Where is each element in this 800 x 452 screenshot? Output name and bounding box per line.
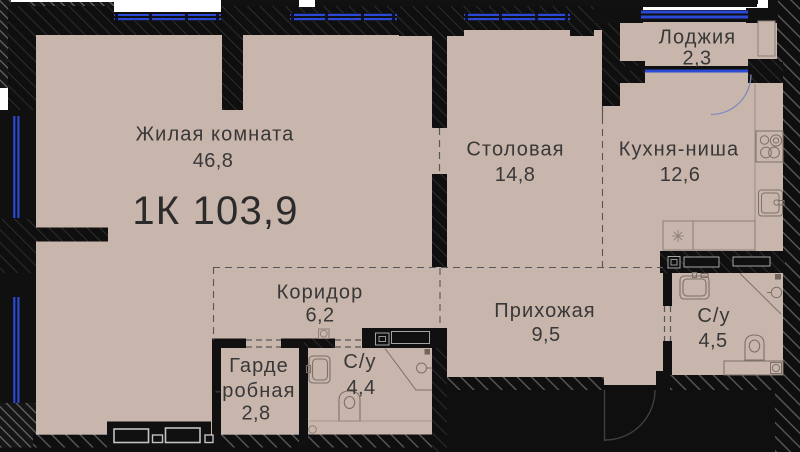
svg-text:2,3: 2,3 [682,48,711,70]
svg-text:Лоджия: Лоджия [659,27,736,49]
svg-text:Кухня-ниша: Кухня-ниша [619,139,740,161]
svg-text:-робная: -робная [214,380,295,402]
svg-text:С/у: С/у [343,351,376,373]
svg-text:4,5: 4,5 [698,330,727,352]
svg-text:Коридор: Коридор [277,282,364,304]
svg-text:С/у: С/у [697,305,730,327]
svg-text:9,5: 9,5 [531,324,560,346]
svg-text:12,6: 12,6 [660,164,701,186]
svg-text:Столовая: Столовая [466,139,564,161]
svg-text:6,2: 6,2 [305,305,334,327]
svg-text:14,8: 14,8 [495,164,536,186]
svg-text:1К 103,9: 1К 103,9 [132,189,298,233]
svg-text:Жилая комната: Жилая комната [136,124,295,146]
svg-text:Прихожая: Прихожая [494,300,595,322]
svg-text:4,4: 4,4 [346,377,375,399]
svg-text:46,8: 46,8 [193,150,234,172]
svg-text:Гарде: Гарде [229,355,289,377]
svg-text:2,8: 2,8 [241,403,270,425]
